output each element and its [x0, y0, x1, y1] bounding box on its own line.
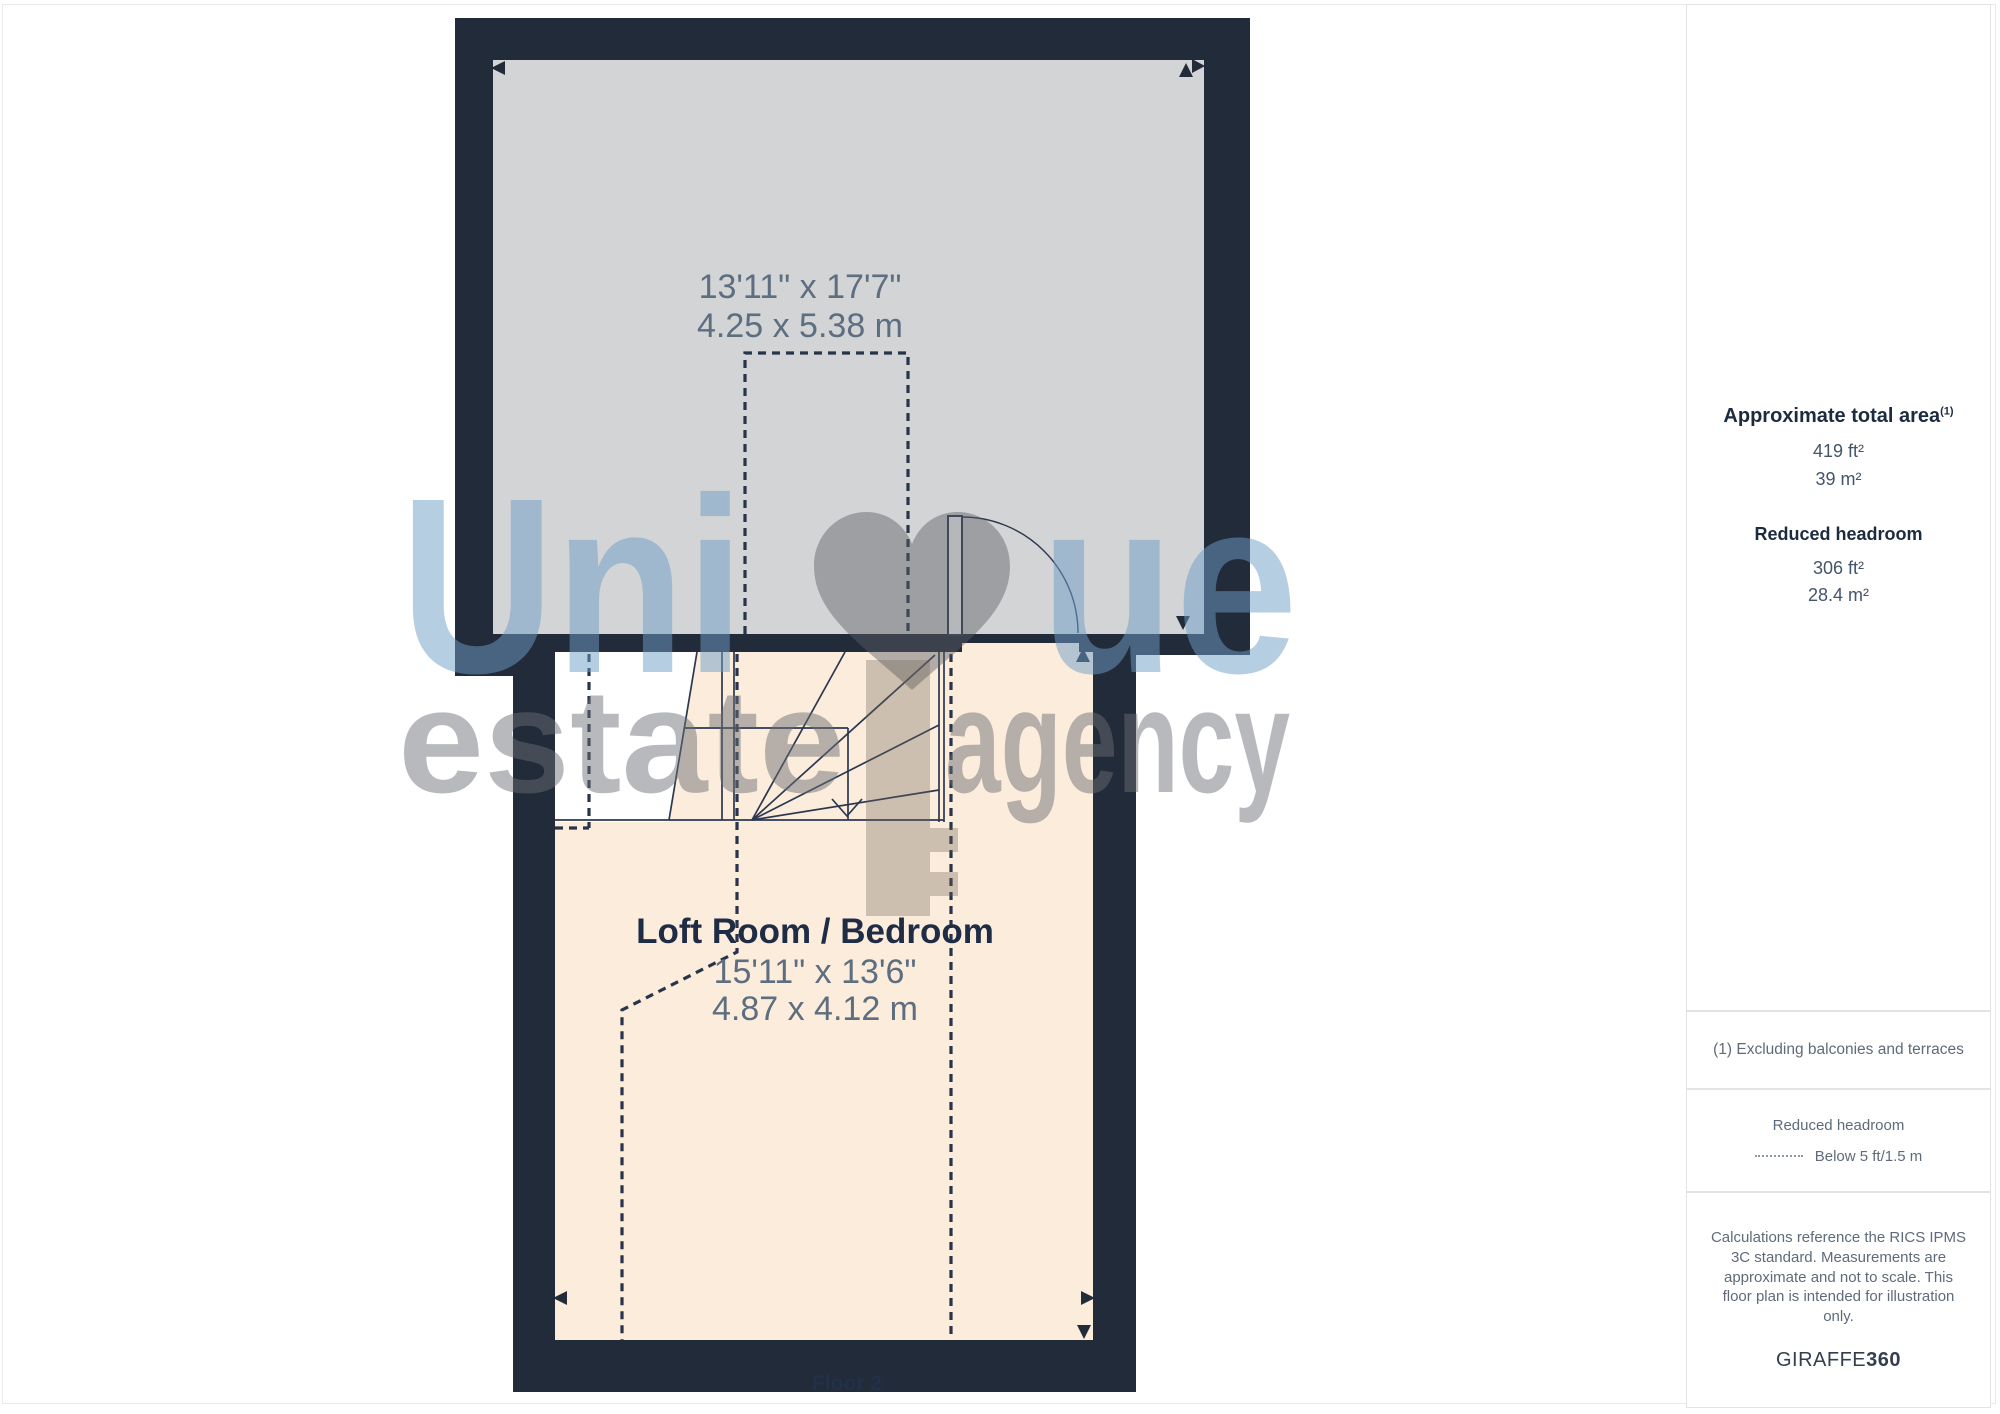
total-area-imperial: 419 ft² [1813, 438, 1864, 466]
sidebar-legend: Reduced headroom Below 5 ft/1.5 m [1686, 1089, 1991, 1192]
dashed-line-swatch-icon [1755, 1155, 1803, 1157]
disclaimer-text: Calculations reference the RICS IPMS 3C … [1709, 1228, 1969, 1327]
watermark-agency-text: agency [945, 659, 1290, 824]
total-area-heading: Approximate total area(1) [1723, 405, 1953, 428]
upper-room-dims-metric: 4.25 x 5.38 m [697, 307, 903, 345]
reduced-headroom-metric: 28.4 m² [1808, 582, 1869, 610]
sidebar-disclaimer: Calculations reference the RICS IPMS 3C … [1686, 1192, 1991, 1408]
legend-item-label: Below 5 ft/1.5 m [1815, 1148, 1923, 1165]
total-area-heading-text: Approximate total area [1723, 405, 1940, 427]
brand-logo: GIRAFFE360 [1776, 1349, 1901, 1372]
footnote-marker: (1) [1940, 405, 1953, 417]
loft-room-name: Loft Room / Bedroom [636, 912, 994, 951]
brand-suffix: 360 [1866, 1349, 1901, 1371]
upper-room-dims-imperial: 13'11" x 17'7" [699, 268, 902, 306]
watermark-estate-text: estate [398, 659, 845, 824]
legend-row: Below 5 ft/1.5 m [1755, 1148, 1923, 1165]
legend-title: Reduced headroom [1773, 1117, 1905, 1134]
loft-room-dims-imperial: 15'11" x 13'6" [714, 953, 917, 991]
loft-room-dims-metric: 4.87 x 4.12 m [712, 990, 918, 1028]
total-area-metric: 39 m² [1815, 466, 1861, 494]
sidebar-footnote: (1) Excluding balconies and terraces [1686, 1011, 1991, 1089]
sidebar-area-summary: Approximate total area(1) 419 ft² 39 m² … [1686, 4, 1991, 1011]
footnote-text: (1) Excluding balconies and terraces [1713, 1041, 1964, 1059]
floor-label: Floor 2 [812, 1372, 882, 1395]
brand-name: GIRAFFE [1776, 1349, 1866, 1371]
floorplan-page: 13'11" x 17'7" 4.25 x 5.38 m Loft Room /… [0, 0, 2000, 1414]
reduced-headroom-imperial: 306 ft² [1813, 555, 1864, 583]
reduced-headroom-heading: Reduced headroom [1754, 524, 1922, 545]
